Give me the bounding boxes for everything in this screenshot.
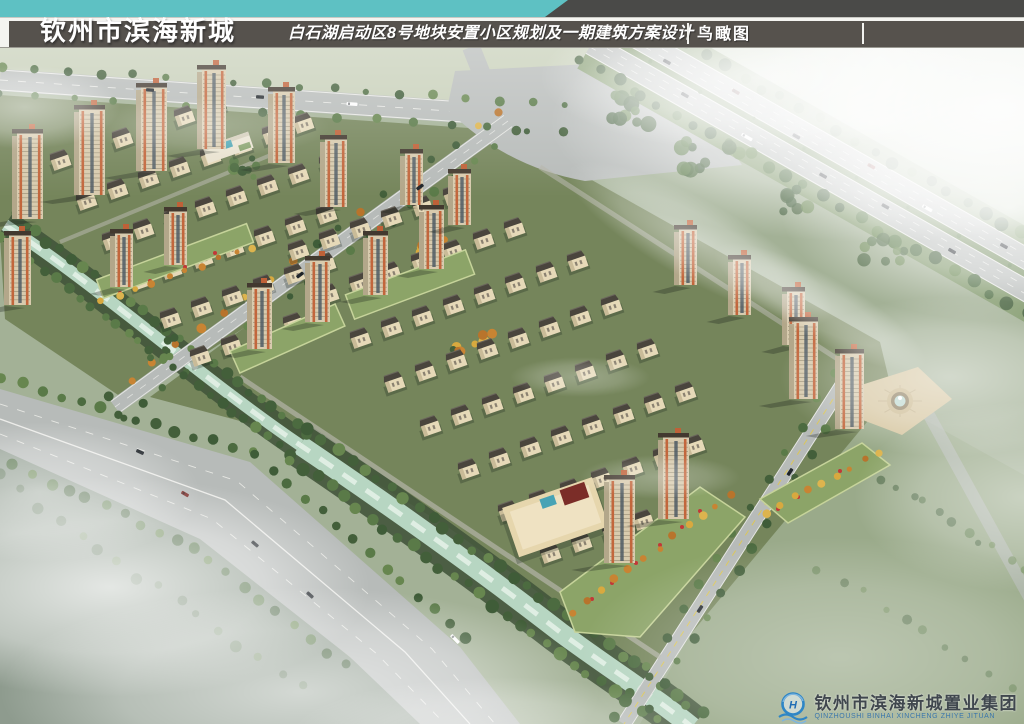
aerial-rendering <box>0 47 1024 724</box>
presentation-board: 钦州市滨海新城 白石湖启动区8号地块安置小区规划及一期建筑方案设计 鸟瞰图 <box>0 0 1024 724</box>
apartment-tower <box>0 226 31 314</box>
umbrella <box>213 251 217 255</box>
umbrella <box>838 469 842 473</box>
view-type-label: 鸟瞰图 <box>697 24 751 45</box>
fog-patch <box>510 357 650 397</box>
fog-patch <box>580 455 740 499</box>
company-logo-icon: H <box>776 690 810 724</box>
company-tagline: QINZHOUSHI BINHAI XINCHENG ZHIYE JITUAN <box>815 713 1019 720</box>
banner-separator <box>687 23 689 44</box>
banner-top-strip-teal <box>0 0 568 17</box>
umbrella <box>680 525 684 529</box>
banner-separator <box>862 23 864 44</box>
fog-patch <box>90 97 330 157</box>
company-name: 钦州市滨海新城置业集团 <box>815 695 1019 712</box>
title-banner: 钦州市滨海新城 白石湖启动区8号地块安置小区规划及一期建筑方案设计 鸟瞰图 <box>0 0 1024 47</box>
project-title: 钦州市滨海新城 <box>40 17 236 45</box>
plan-subtitle: 白石湖启动区8号地块安置小区规划及一期建筑方案设计 <box>288 23 693 45</box>
company-watermark: H 钦州市滨海新城置业集团 QINZHOUSHI BINHAI XINCHENG… <box>776 690 1019 724</box>
logo-letter: H <box>789 700 798 712</box>
banner-left-notch <box>0 21 9 47</box>
